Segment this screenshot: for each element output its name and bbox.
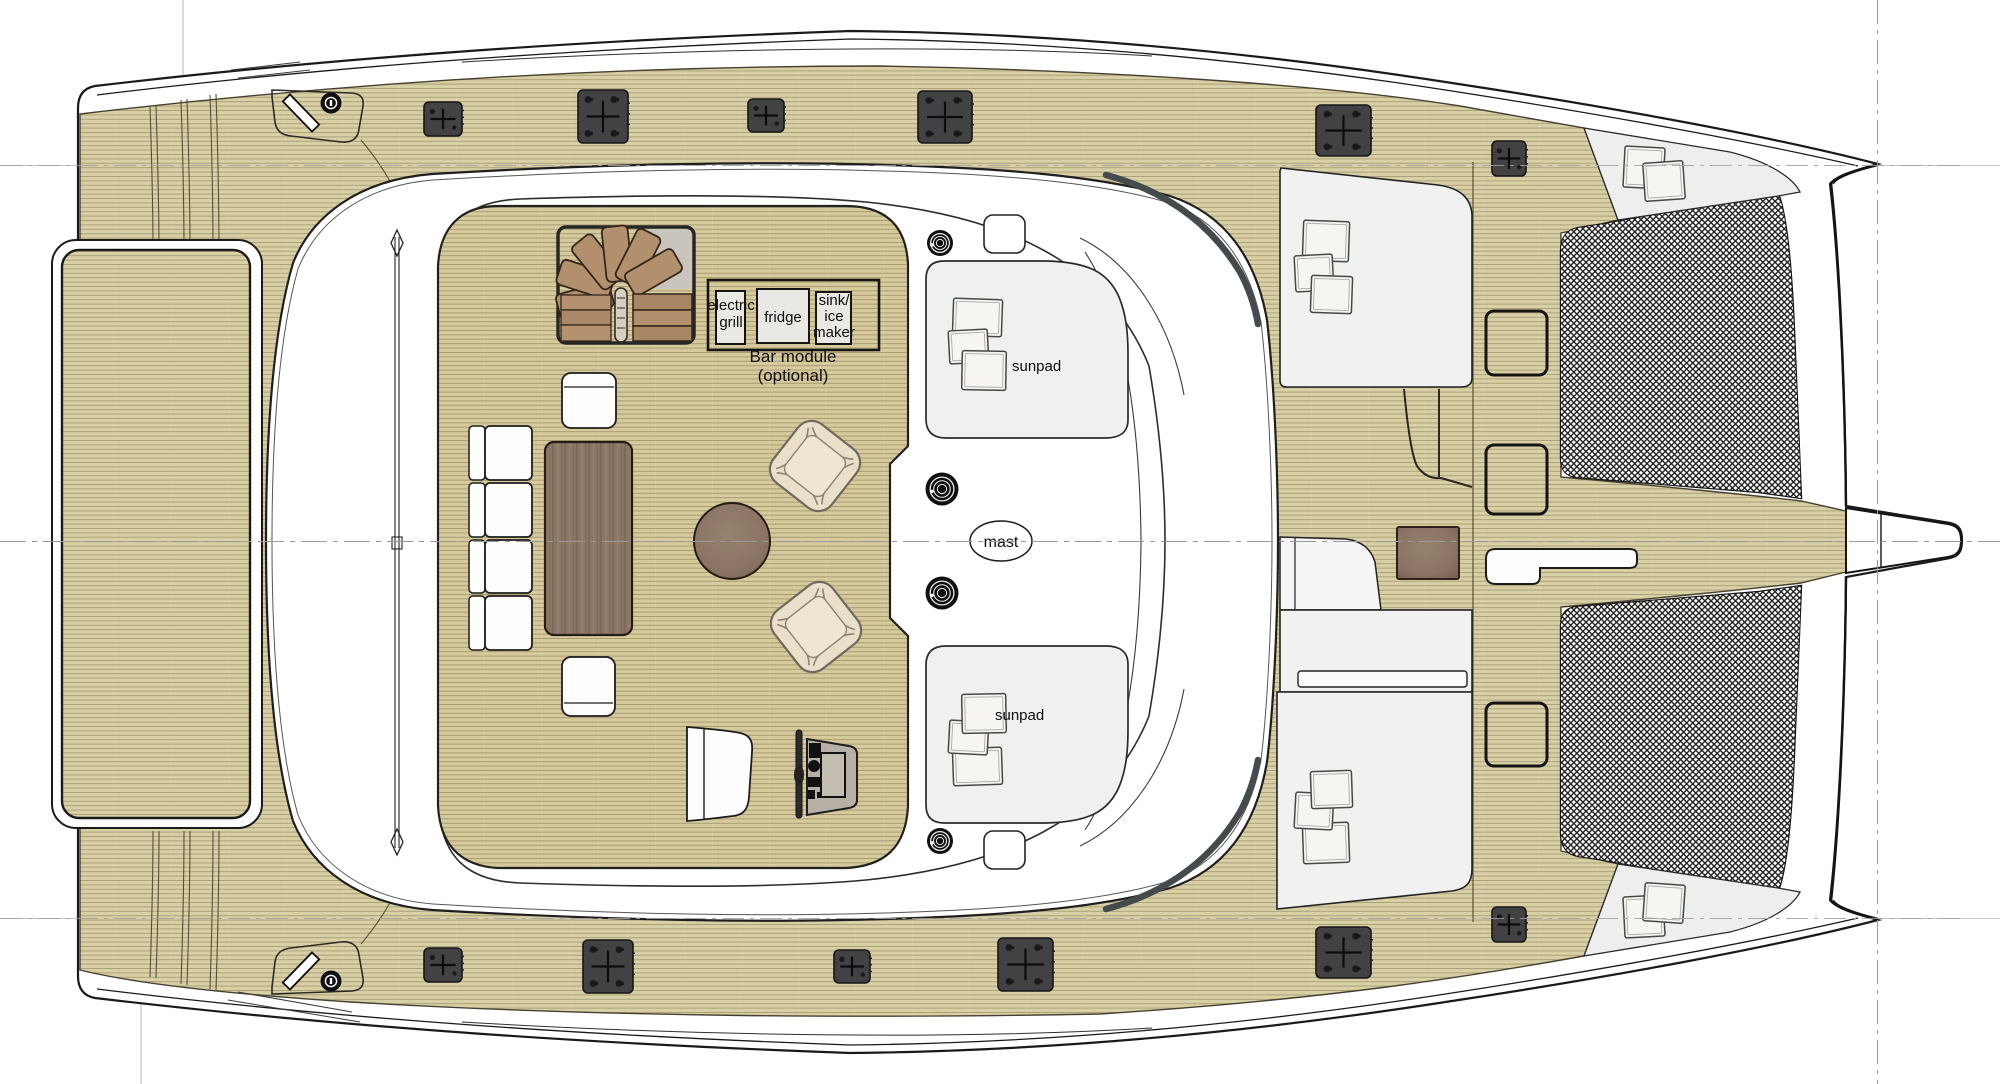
svg-text:Bar module: Bar module: [750, 347, 837, 366]
svg-text:ice: ice: [824, 308, 843, 325]
svg-text:sink/: sink/: [819, 292, 851, 309]
svg-text:grill: grill: [719, 314, 742, 331]
svg-text:sunpad: sunpad: [1012, 358, 1061, 375]
svg-text:mast: mast: [984, 534, 1019, 551]
svg-text:maker: maker: [813, 324, 855, 341]
svg-text:(optional): (optional): [758, 366, 829, 385]
svg-text:sunpad: sunpad: [995, 707, 1044, 724]
svg-text:electric: electric: [707, 297, 755, 314]
svg-text:fridge: fridge: [764, 309, 802, 326]
